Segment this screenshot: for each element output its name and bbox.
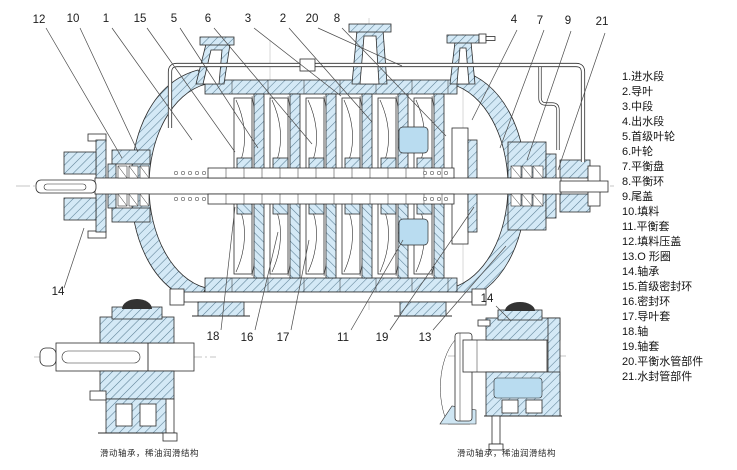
callout-8: 8 <box>334 13 340 25</box>
legend-item: 15.首级密封环 <box>622 280 703 295</box>
legend-item: 19.轴套 <box>622 340 703 355</box>
caption-left-inset: 滑动轴承，稀油润滑结构 <box>100 447 199 459</box>
oil-cap-left <box>122 299 152 309</box>
legend-item: 12.填料压盖 <box>622 235 703 250</box>
legend-item: 5.首级叶轮 <box>622 130 703 145</box>
legend-item: 13.O 形圈 <box>622 250 703 265</box>
callout-13: 13 <box>419 332 432 344</box>
legend-item: 14.轴承 <box>622 265 703 280</box>
legend-item: 6.叶轮 <box>622 145 703 160</box>
callout-20: 20 <box>306 13 319 25</box>
oil-cap-right <box>505 302 535 311</box>
outlet-flange <box>349 24 391 84</box>
legend-item: 21.水封管部件 <box>622 370 703 385</box>
legend-item: 16.密封环 <box>622 295 703 310</box>
callout-14-right: 14 <box>481 293 494 305</box>
legend-item: 4.出水段 <box>622 115 703 130</box>
caption-right-inset: 滑动轴承，稀油润滑结构 <box>457 447 556 459</box>
pump-feet <box>170 289 486 316</box>
inlet-flange <box>196 37 234 84</box>
water-seal-pipe <box>540 67 558 150</box>
pump-structure-figure: 12 10 1 15 5 6 3 2 20 8 4 7 9 21 14 18 1… <box>0 0 737 470</box>
callout-7: 7 <box>537 15 543 27</box>
legend-item: 17.导叶套 <box>622 310 703 325</box>
callout-16: 16 <box>241 332 254 344</box>
legend-item: 20.平衡水管部件 <box>622 355 703 370</box>
legend-item: 7.平衡盘 <box>622 160 703 175</box>
callout-2: 2 <box>280 13 286 25</box>
callout-4: 4 <box>511 14 517 26</box>
legend-item: 9.尾盖 <box>622 190 703 205</box>
callout-14-left: 14 <box>52 286 65 298</box>
callout-12: 12 <box>33 14 46 26</box>
callout-15: 15 <box>134 13 147 25</box>
callout-9: 9 <box>565 15 571 27</box>
callout-3: 3 <box>245 13 251 25</box>
callout-1: 1 <box>103 13 109 25</box>
callout-17: 17 <box>277 332 290 344</box>
legend-item: 2.导叶 <box>622 85 703 100</box>
parts-legend: 1.进水段 2.导叶 3.中段 4.出水段 5.首级叶轮 6.叶轮 7.平衡盘 … <box>622 70 703 385</box>
callout-19: 19 <box>376 332 389 344</box>
legend-item: 10.填料 <box>622 205 703 220</box>
legend-item: 8.平衡环 <box>622 175 703 190</box>
callout-6: 6 <box>205 13 211 25</box>
callout-11: 11 <box>337 332 349 344</box>
left-bearing-inset <box>34 299 216 441</box>
legend-item: 18.轴 <box>622 325 703 340</box>
callout-10: 10 <box>67 13 80 25</box>
callout-21: 21 <box>596 16 609 28</box>
legend-item: 3.中段 <box>622 100 703 115</box>
legend-item: 1.进水段 <box>622 70 703 85</box>
right-bearing-inset <box>440 302 566 450</box>
callout-5: 5 <box>171 13 177 25</box>
balance-port-flange <box>447 34 495 84</box>
legend-item: 11.平衡套 <box>622 220 703 235</box>
callout-18: 18 <box>207 331 220 343</box>
